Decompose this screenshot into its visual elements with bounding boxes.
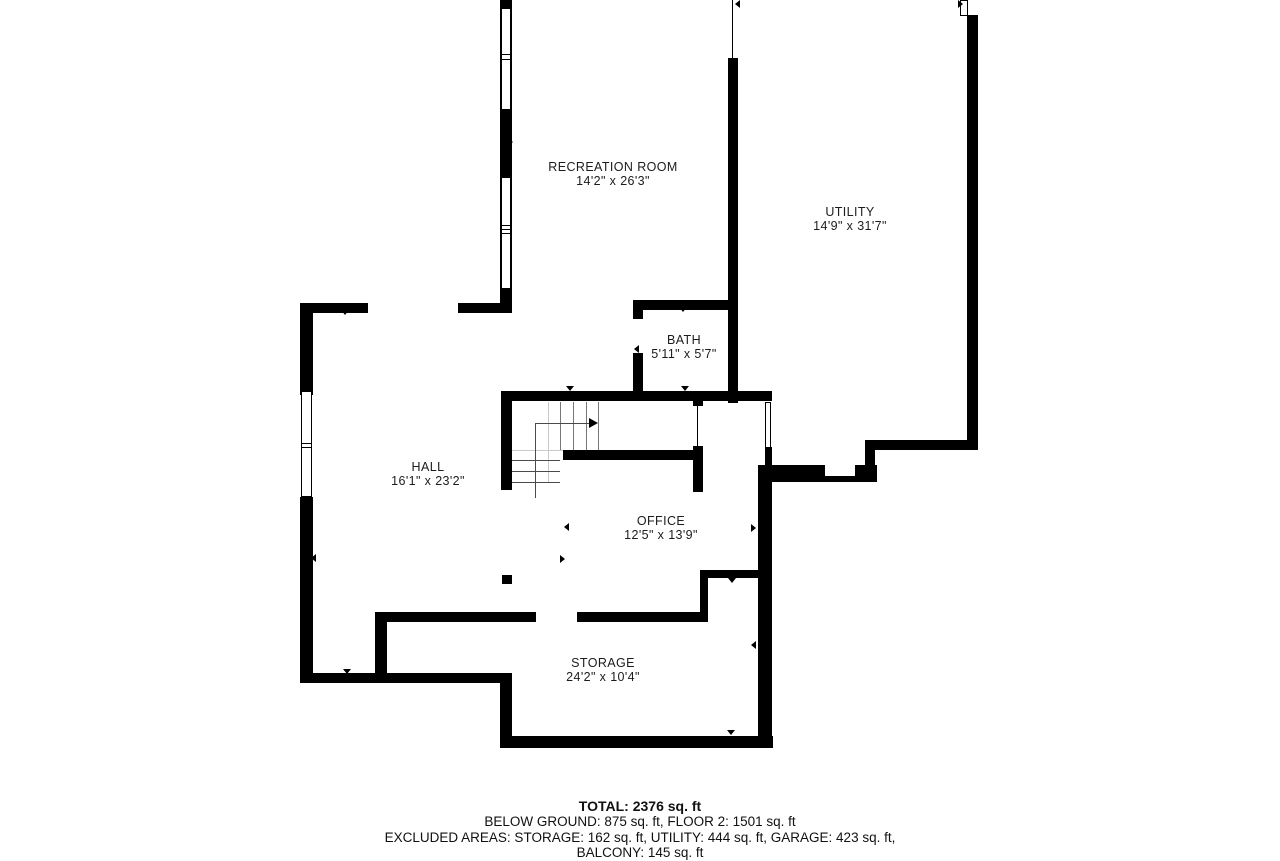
room-label-utility: UTILITY 14'9" x 31'7" [813,205,887,233]
room-name: BATH [651,333,716,347]
window-divider [502,233,510,234]
wall-stairs-left [501,391,512,490]
door-swing-marker [566,386,574,391]
door-swing-marker [751,524,756,532]
room-dims: 5'11" x 5'7" [651,347,716,361]
stair-tread [512,460,560,461]
floor-plan: RECREATION ROOM 14'2" x 26'3" UTILITY 14… [0,0,1280,760]
cut-line-top [732,0,733,58]
door-swing-marker [564,523,569,531]
stair-tread [560,402,561,450]
summary-excluded: EXCLUDED AREAS: STORAGE: 162 sq. ft, UTI… [0,830,1280,846]
door-swing-marker [727,730,735,735]
wall-recreation-right [728,58,738,403]
stair-rail [535,423,536,498]
room-dims: 14'2" x 26'3" [548,174,677,188]
door-swing-marker [634,345,639,353]
wall-bath-left-lower [633,353,643,393]
room-dims: 16'1" x 23'2" [391,474,465,488]
wall-bath-left-upper [633,303,643,319]
room-label-office: OFFICE 12'5" x 13'9" [624,514,698,542]
wall-hall-left-upper [300,305,313,395]
wall-utility-left-stub [765,447,772,465]
wall-hall-left-lower [300,497,313,683]
door-swing-marker [735,0,740,8]
door-swing-marker [679,307,687,312]
wall-office-right-stub [693,397,703,406]
door-line-office-right [697,406,698,446]
door-swing-marker [311,554,316,562]
wall-right-main [758,465,772,748]
wall-office-right-block [693,446,703,492]
door-swing-marker [341,310,349,315]
wall-hall-bottom [300,673,512,683]
stair-tread [512,482,560,483]
wall-storage-top-left [375,612,536,622]
window-divider [302,447,311,448]
room-name: OFFICE [624,514,698,528]
door-swing-marker [508,138,513,146]
window-office-utility [765,402,771,448]
stair-tread [586,402,587,450]
window-hall-left [301,391,312,497]
wall-hall-step-down [500,683,512,748]
summary-floors: BELOW GROUND: 875 sq. ft, FLOOR 2: 1501 … [0,814,1280,830]
wall-utility-bottom-right [865,440,978,450]
wall-storage-step [700,578,708,620]
window-divider [502,59,510,60]
room-label-storage: STORAGE 24'2" x 10'4" [566,656,640,684]
room-label-recreation: RECREATION ROOM 14'2" x 26'3" [548,160,677,188]
stair-guide [512,450,563,451]
room-dims: 24'2" x 10'4" [566,670,640,684]
area-summary: TOTAL: 2376 sq. ft BELOW GROUND: 875 sq.… [0,798,1280,861]
window-divider [502,225,510,226]
wall-utility-right [967,15,978,450]
summary-total: TOTAL: 2376 sq. ft [0,798,1280,814]
stair-tread [598,402,599,450]
wall-utility-step [865,440,875,476]
room-label-hall: HALL 16'1" x 23'2" [391,460,465,488]
wall-door-post [502,575,512,584]
door-swing-marker [751,641,756,649]
room-label-bath: BATH 5'11" x 5'7" [651,333,716,361]
stair-tread [512,471,560,472]
wall-utility-bottom-notch [823,476,857,482]
door-swing-marker [560,555,565,563]
wall-storage-bottom [500,736,773,748]
stair-direction-arrow [589,418,598,428]
door-swing-marker [343,669,351,674]
window-divider [502,229,510,230]
stair-tread [573,402,574,450]
stair-arrow-line [536,423,590,424]
wall-stairs-bottom [563,450,703,460]
wall-storage-top-right [577,612,708,622]
room-name: RECREATION ROOM [548,160,677,174]
room-dims: 12'5" x 13'9" [624,528,698,542]
room-name: STORAGE [566,656,640,670]
window-divider [302,443,311,444]
door-swing-marker [376,641,384,646]
room-name: UTILITY [813,205,887,219]
room-name: HALL [391,460,465,474]
room-dims: 14'9" x 31'7" [813,219,887,233]
door-swing-marker [681,386,689,391]
door-swing-marker [728,578,736,583]
door-swing-marker [958,0,963,8]
window-divider [502,54,510,55]
wall-office-bottom-right [700,570,758,578]
